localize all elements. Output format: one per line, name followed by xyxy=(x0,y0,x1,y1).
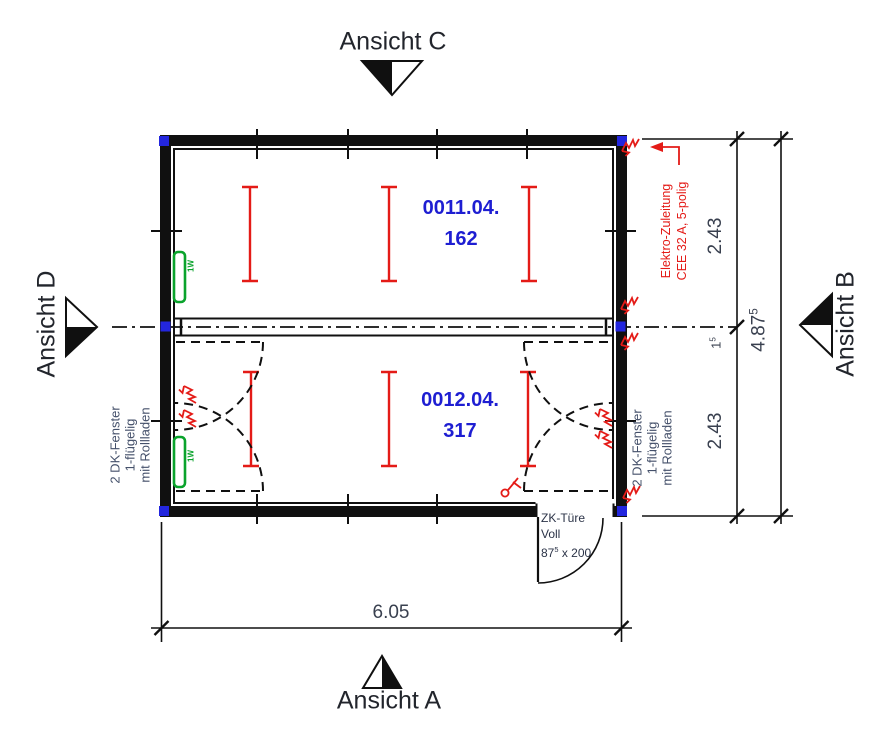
window-left-line2: 1-flügelig xyxy=(123,406,138,483)
window-annotation-right: 2 DK-Fenster 1-flügelig mit Rollladen xyxy=(630,409,675,486)
window-left-line1: 2 DK-Fenster xyxy=(108,406,123,483)
view-markers xyxy=(66,61,832,688)
plan-linework xyxy=(0,0,895,748)
room-label-1: 0011.04. 162 xyxy=(423,193,500,255)
window-annotation-left: 2 DK-Fenster 1-flügelig mit Rollladen xyxy=(108,406,153,483)
window-right-line2: 1-flügelig xyxy=(645,409,660,486)
dim-right-total: 4.875 xyxy=(747,308,770,352)
room-1-number: 162 xyxy=(423,224,500,255)
room-2-number: 317 xyxy=(421,416,499,447)
dim-mid-sup: 5 xyxy=(708,337,717,341)
window-tag-bottom: 1W xyxy=(187,450,196,462)
door-size-main: 87 xyxy=(541,546,554,560)
door-line2: Voll xyxy=(541,527,591,543)
window-right-line3: mit Rollladen xyxy=(660,409,675,486)
view-label-top: Ansicht C xyxy=(340,28,447,57)
dim-total-main: 4.87 xyxy=(749,315,770,352)
view-label-left: Ansicht D xyxy=(33,271,62,378)
view-label-bottom: Ansicht A xyxy=(337,687,441,716)
room-2-code: 0012.04. xyxy=(421,385,499,416)
dim-mid-main: 1 xyxy=(709,342,724,349)
window-swing-arcs xyxy=(175,342,612,491)
dim-right-seg-top: 2.43 xyxy=(705,218,727,255)
floor-plan-canvas: Ansicht C Ansicht A Ansicht D Ansicht B … xyxy=(0,0,895,748)
room-label-2: 0012.04. 317 xyxy=(421,385,499,447)
door-line1: ZK-Türe xyxy=(541,511,591,527)
electric-line2: CEE 32 A, 5-polig xyxy=(674,182,690,281)
door-annotation: ZK-Türe Voll 875 x 200 xyxy=(541,511,591,562)
dim-right-seg-bottom: 2.43 xyxy=(705,413,727,450)
dim-right-seg-mid: 15 xyxy=(708,337,723,349)
building-walls xyxy=(166,141,622,512)
dim-bottom-total: 6.05 xyxy=(373,602,410,624)
door-size-rest: x 200 xyxy=(559,546,592,560)
window-left-line3: mit Rollladen xyxy=(138,406,153,483)
window-symbols xyxy=(174,252,185,487)
electric-annotation: Elektro-Zuleitung CEE 32 A, 5-polig xyxy=(658,182,690,281)
room-1-code: 0011.04. xyxy=(423,193,500,224)
dim-total-sup: 5 xyxy=(747,308,760,315)
window-right-line1: 2 DK-Fenster xyxy=(630,409,645,486)
electric-line1: Elektro-Zuleitung xyxy=(658,182,674,281)
door-size: 875 x 200 xyxy=(541,542,591,562)
view-label-right: Ansicht B xyxy=(832,271,861,377)
corner-nodes xyxy=(159,136,627,516)
window-tag-top: 1W xyxy=(187,260,196,272)
